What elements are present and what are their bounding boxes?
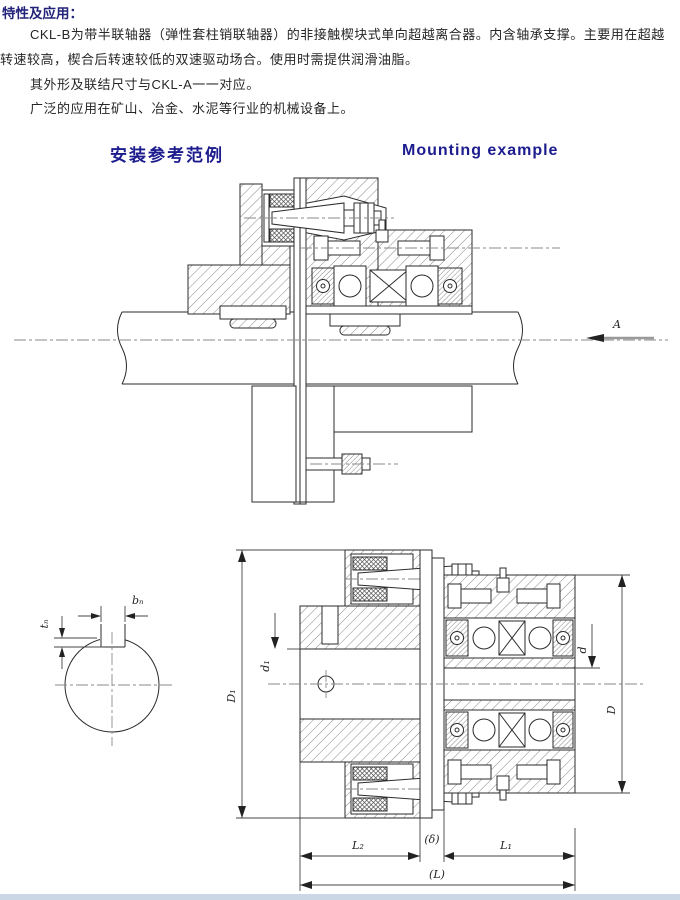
dim-d-label: d xyxy=(576,646,589,653)
shaft-section xyxy=(118,312,523,384)
dimension-drawing: bₙ tₙ xyxy=(0,528,680,900)
catalog-page: 特性及应用： CKL-B为带半联轴器（弹性套柱销联轴器）的非接触楔块式单向超越离… xyxy=(0,0,680,900)
view-arrow-a: A xyxy=(586,318,654,342)
bearing-row xyxy=(312,266,462,306)
dim-D-label: D xyxy=(605,705,618,715)
keyway-depth-label: tₙ xyxy=(38,620,51,629)
dim-d1-label: d₁ xyxy=(259,660,272,671)
lower-flange xyxy=(252,386,472,502)
shaft-end-view: bₙ tₙ xyxy=(38,594,172,746)
dim-d: d xyxy=(575,624,600,668)
dim-D1-label: D₁ xyxy=(225,689,238,703)
mounting-example-drawing: A xyxy=(0,170,680,520)
page-footer-strip xyxy=(0,894,680,900)
dim-L2-label: L₂ xyxy=(351,839,364,852)
dim-gap-label: (δ) xyxy=(424,833,439,846)
intro-line-3: 其外形及联结尺寸与CKL-A一一对应。 xyxy=(30,74,260,93)
dim-L1-label: L₁ xyxy=(499,839,512,852)
keyway-width-dim: bₙ xyxy=(78,594,148,622)
dim-L-total-label: (L) xyxy=(429,868,445,881)
section-title-features: 特性及应用： xyxy=(2,2,83,22)
dim-d1: d₁ xyxy=(259,613,300,672)
view-arrow-label: A xyxy=(612,318,621,331)
heading-mounting-example-en: Mounting example xyxy=(402,142,558,160)
keyway-width-label: bₙ xyxy=(132,594,144,607)
intro-line-4: 广泛的应用在矿山、冶金、水泥等行业的机械设备上。 xyxy=(30,98,354,117)
intro-line-2: 转速较高，楔合后转速较低的双速驱动场合。使用时需提供润滑油脂。 xyxy=(0,49,419,68)
intro-line-1: CKL-B为带半联轴器（弹性套柱销联轴器）的非接触楔块式单向超越离合器。内含轴承… xyxy=(30,24,665,43)
heading-mounting-example-cn: 安装参考范例 xyxy=(110,141,224,166)
